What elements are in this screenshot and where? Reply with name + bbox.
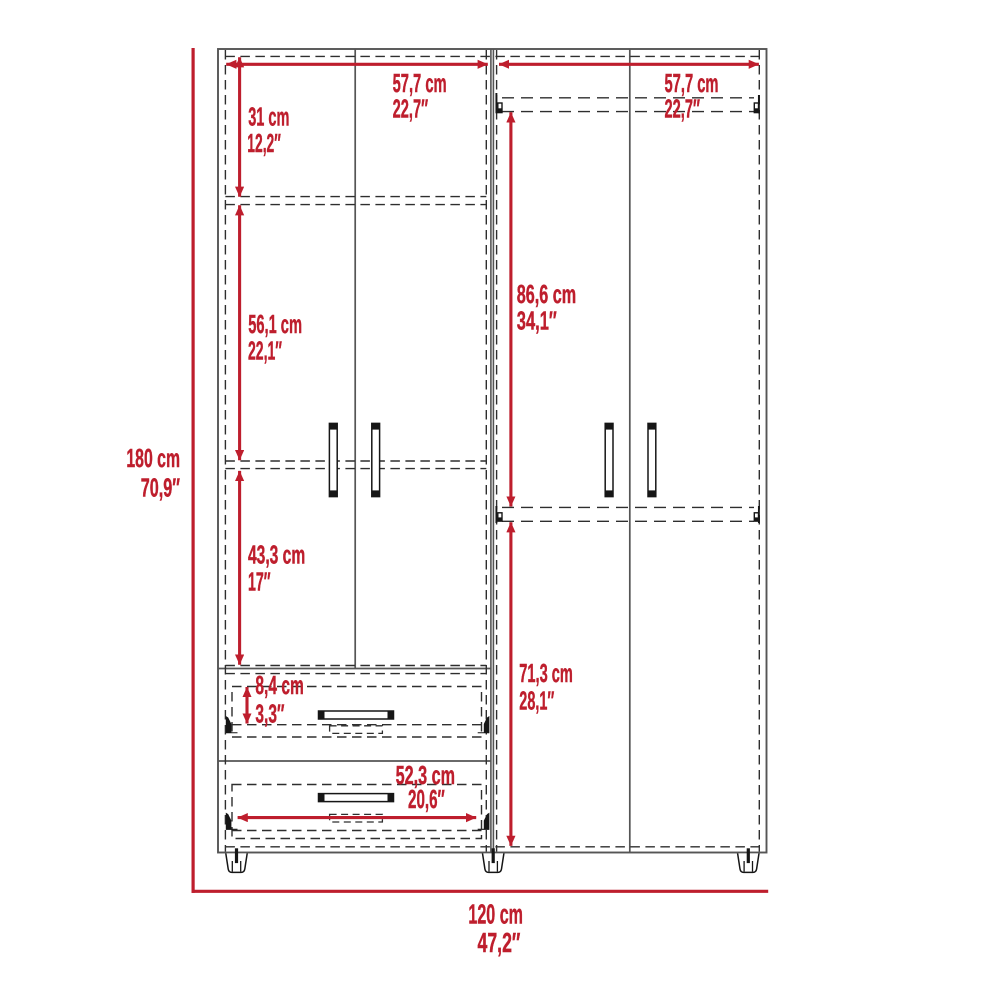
svg-text:8,4 cm: 8,4 cm [255,670,303,700]
svg-text:47,2″: 47,2″ [478,927,521,958]
svg-text:22,7″: 22,7″ [393,94,429,124]
svg-text:70,9″: 70,9″ [141,473,180,503]
svg-text:71,3 cm: 71,3 cm [519,658,573,688]
svg-text:120 cm: 120 cm [468,898,523,929]
svg-text:28,1″: 28,1″ [519,686,554,716]
svg-text:34,1″: 34,1″ [517,305,557,335]
svg-text:31 cm: 31 cm [248,102,289,132]
svg-text:20,6″: 20,6″ [408,784,445,814]
svg-text:43,3 cm: 43,3 cm [248,539,305,569]
svg-text:17″: 17″ [248,566,271,596]
svg-text:12,2″: 12,2″ [247,128,281,158]
svg-text:22,7″: 22,7″ [665,94,701,124]
svg-text:22,1″: 22,1″ [248,336,282,366]
svg-text:180 cm: 180 cm [126,443,180,473]
svg-text:56,1 cm: 56,1 cm [248,309,302,339]
svg-text:3,3″: 3,3″ [255,699,284,729]
